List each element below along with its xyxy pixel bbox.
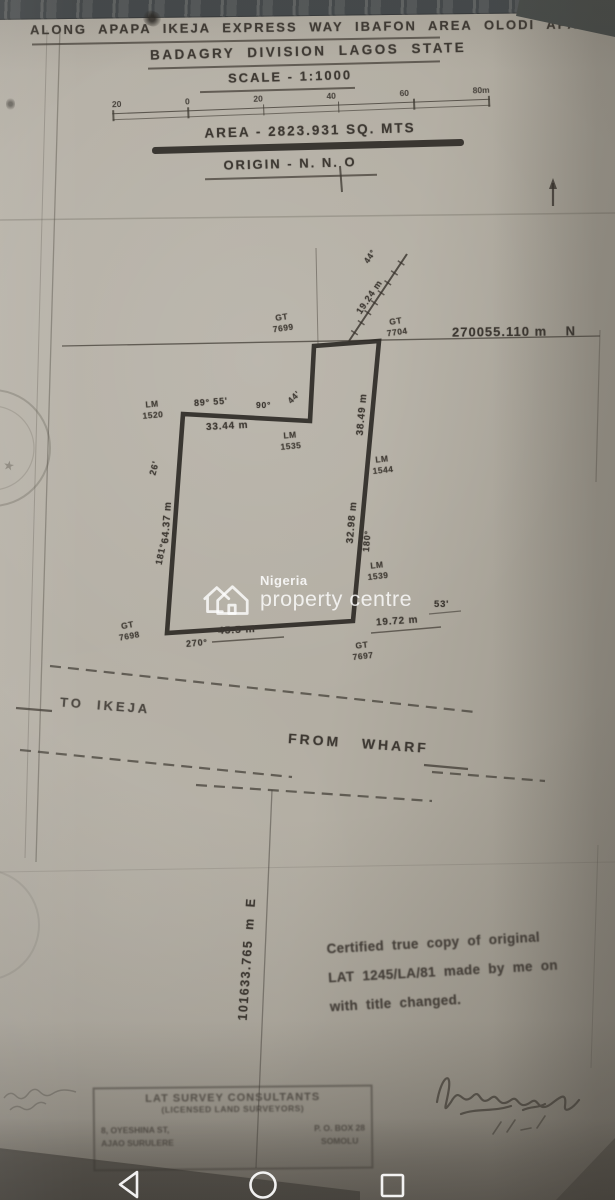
scale-bar-label: 20: [253, 93, 263, 103]
nav-recents-icon[interactable]: [379, 1172, 407, 1200]
scale-bar-label: 80m: [472, 85, 489, 96]
scale-bar-label: 20: [112, 99, 122, 109]
beacon-gt-7698: GT7698: [116, 618, 140, 643]
watermark: Nigeria property centre: [202, 572, 412, 618]
dim-top-length: 33.44 m: [206, 420, 249, 433]
beacon-lm-1535: LM1535: [279, 429, 302, 452]
stamp-firm-subtitle: (LICENSED LAND SURVEYORS): [101, 1103, 365, 1116]
beacon-gt-7697: GT7697: [351, 639, 374, 662]
dim-tie-bearing: 53': [434, 599, 449, 610]
dim-top-angle: 90°: [256, 400, 271, 410]
beacon-gt-7704: GT7704: [385, 315, 409, 339]
property-centre-houses-icon: [202, 572, 250, 618]
dim-bottom-bearing: 270°: [186, 637, 209, 649]
scale-bar-label: 0: [185, 96, 190, 106]
dim-right-bearing: 180°: [361, 530, 373, 553]
scale-bar-label: 60: [399, 88, 409, 98]
northing-label: 270055.110 m N: [452, 323, 576, 339]
certification-note: Certified true copy of original LAT 1245…: [326, 918, 615, 1022]
scale-bar-label: 40: [326, 91, 336, 101]
beacon-lm-1544: LM1544: [371, 453, 394, 476]
survey-plan-photo-screen: ★ ALONG APAPA IKEJA EXPRESS WAY IBAFON A…: [0, 0, 615, 1200]
nav-home-icon[interactable]: [248, 1170, 278, 1200]
beacon-lm-1520: LM1520: [141, 398, 164, 421]
faint-handwriting: [4, 1089, 76, 1110]
nav-back-icon[interactable]: [115, 1169, 145, 1200]
watermark-brand-top: Nigeria: [260, 573, 412, 588]
watermark-brand-bottom: property centre: [260, 588, 412, 611]
ink-blot: [6, 98, 15, 110]
beacon-gt-7699: GT7699: [271, 311, 295, 335]
dim-bottom-length: 45.5 m: [218, 623, 256, 637]
